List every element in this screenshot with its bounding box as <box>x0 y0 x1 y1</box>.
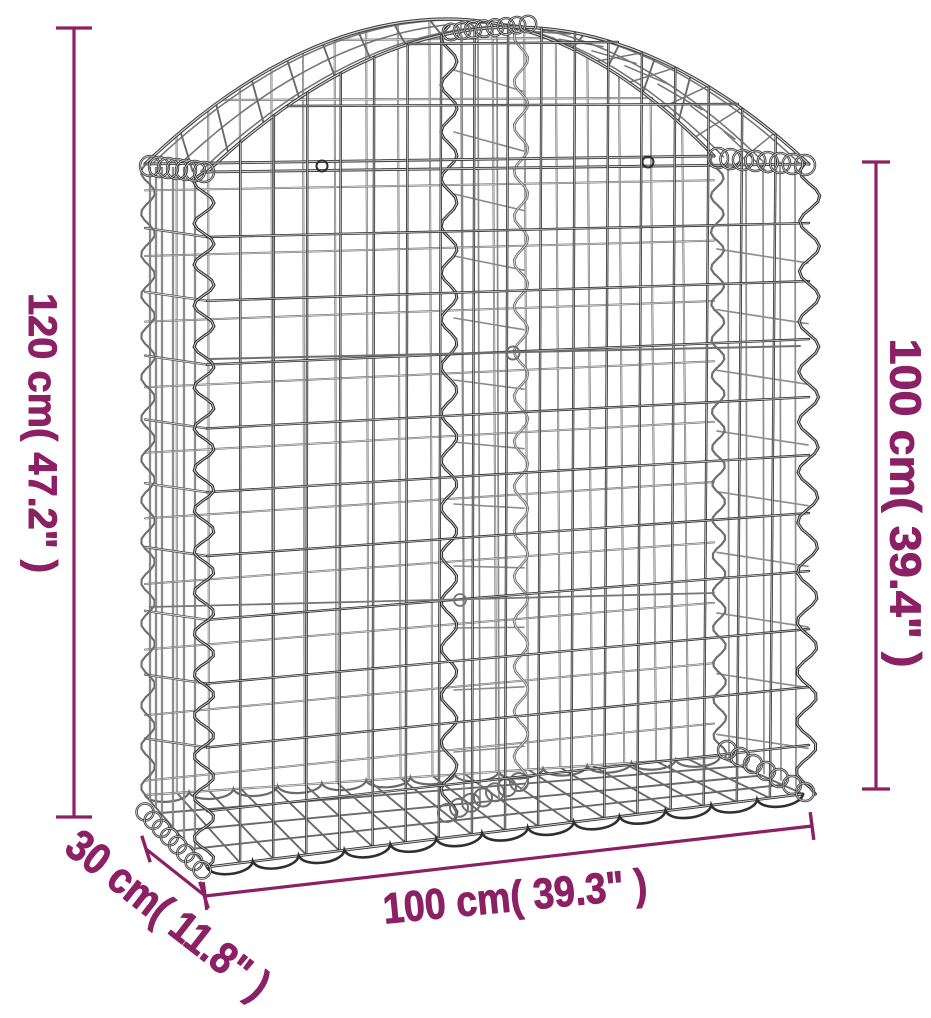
svg-text:100 cm( 39.4" ): 100 cm( 39.4" ) <box>881 339 930 668</box>
svg-text:30 cm( 11.8" ): 30 cm( 11.8" ) <box>56 820 279 1009</box>
svg-text:120 cm( 47.2" ): 120 cm( 47.2" ) <box>20 293 64 573</box>
